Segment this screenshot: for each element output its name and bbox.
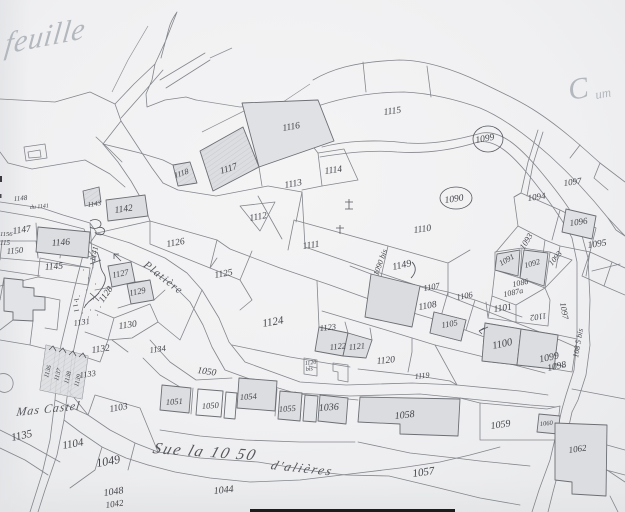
svg-text:1145: 1145 bbox=[44, 261, 63, 273]
svg-text:1058: 1058 bbox=[394, 409, 415, 422]
svg-text:1123: 1123 bbox=[319, 321, 336, 333]
svg-text:1044: 1044 bbox=[213, 484, 234, 497]
svg-text:1055: 1055 bbox=[278, 403, 296, 414]
svg-text:1054: 1054 bbox=[239, 391, 257, 402]
svg-text:1146: 1146 bbox=[51, 237, 70, 249]
svg-text:1148: 1148 bbox=[13, 194, 28, 203]
svg-text:um: um bbox=[594, 84, 612, 102]
svg-text:1060: 1060 bbox=[539, 420, 553, 428]
svg-text:115: 115 bbox=[0, 239, 10, 247]
svg-text:1050: 1050 bbox=[201, 400, 219, 411]
svg-text:1051: 1051 bbox=[165, 396, 183, 407]
svg-text:bis: bis bbox=[306, 366, 314, 373]
svg-text:1121: 1121 bbox=[348, 340, 365, 352]
svg-text:1120: 1120 bbox=[376, 355, 395, 367]
svg-text:1122: 1122 bbox=[329, 340, 347, 352]
svg-text:1156: 1156 bbox=[0, 231, 13, 238]
svg-text:1119: 1119 bbox=[414, 370, 430, 380]
svg-text:1036: 1036 bbox=[318, 402, 339, 414]
